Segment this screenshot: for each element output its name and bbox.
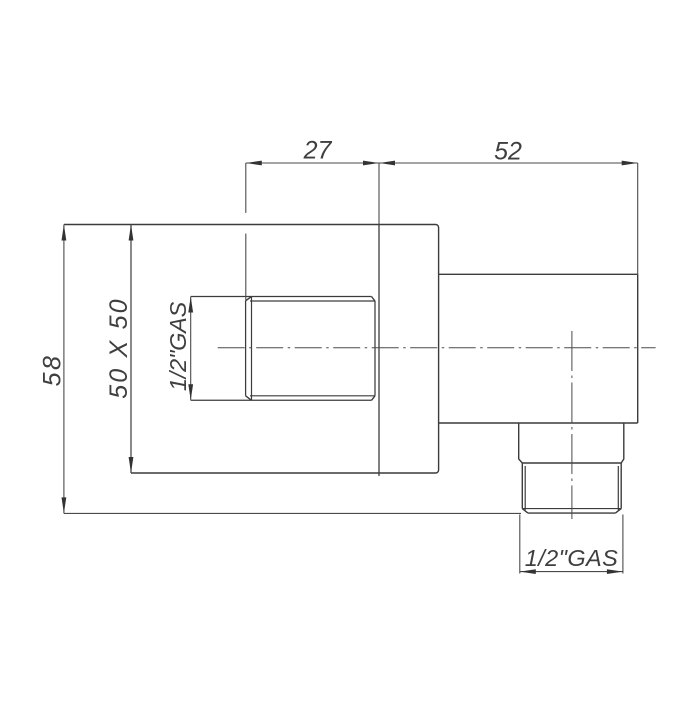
svg-text:27: 27: [303, 136, 333, 164]
svg-text:1/2"GAS: 1/2"GAS: [525, 545, 618, 571]
svg-text:1/2"GAS: 1/2"GAS: [165, 301, 191, 391]
svg-text:50 X 50: 50 X 50: [105, 297, 133, 399]
svg-text:52: 52: [494, 138, 522, 166]
svg-text:58: 58: [39, 354, 67, 387]
